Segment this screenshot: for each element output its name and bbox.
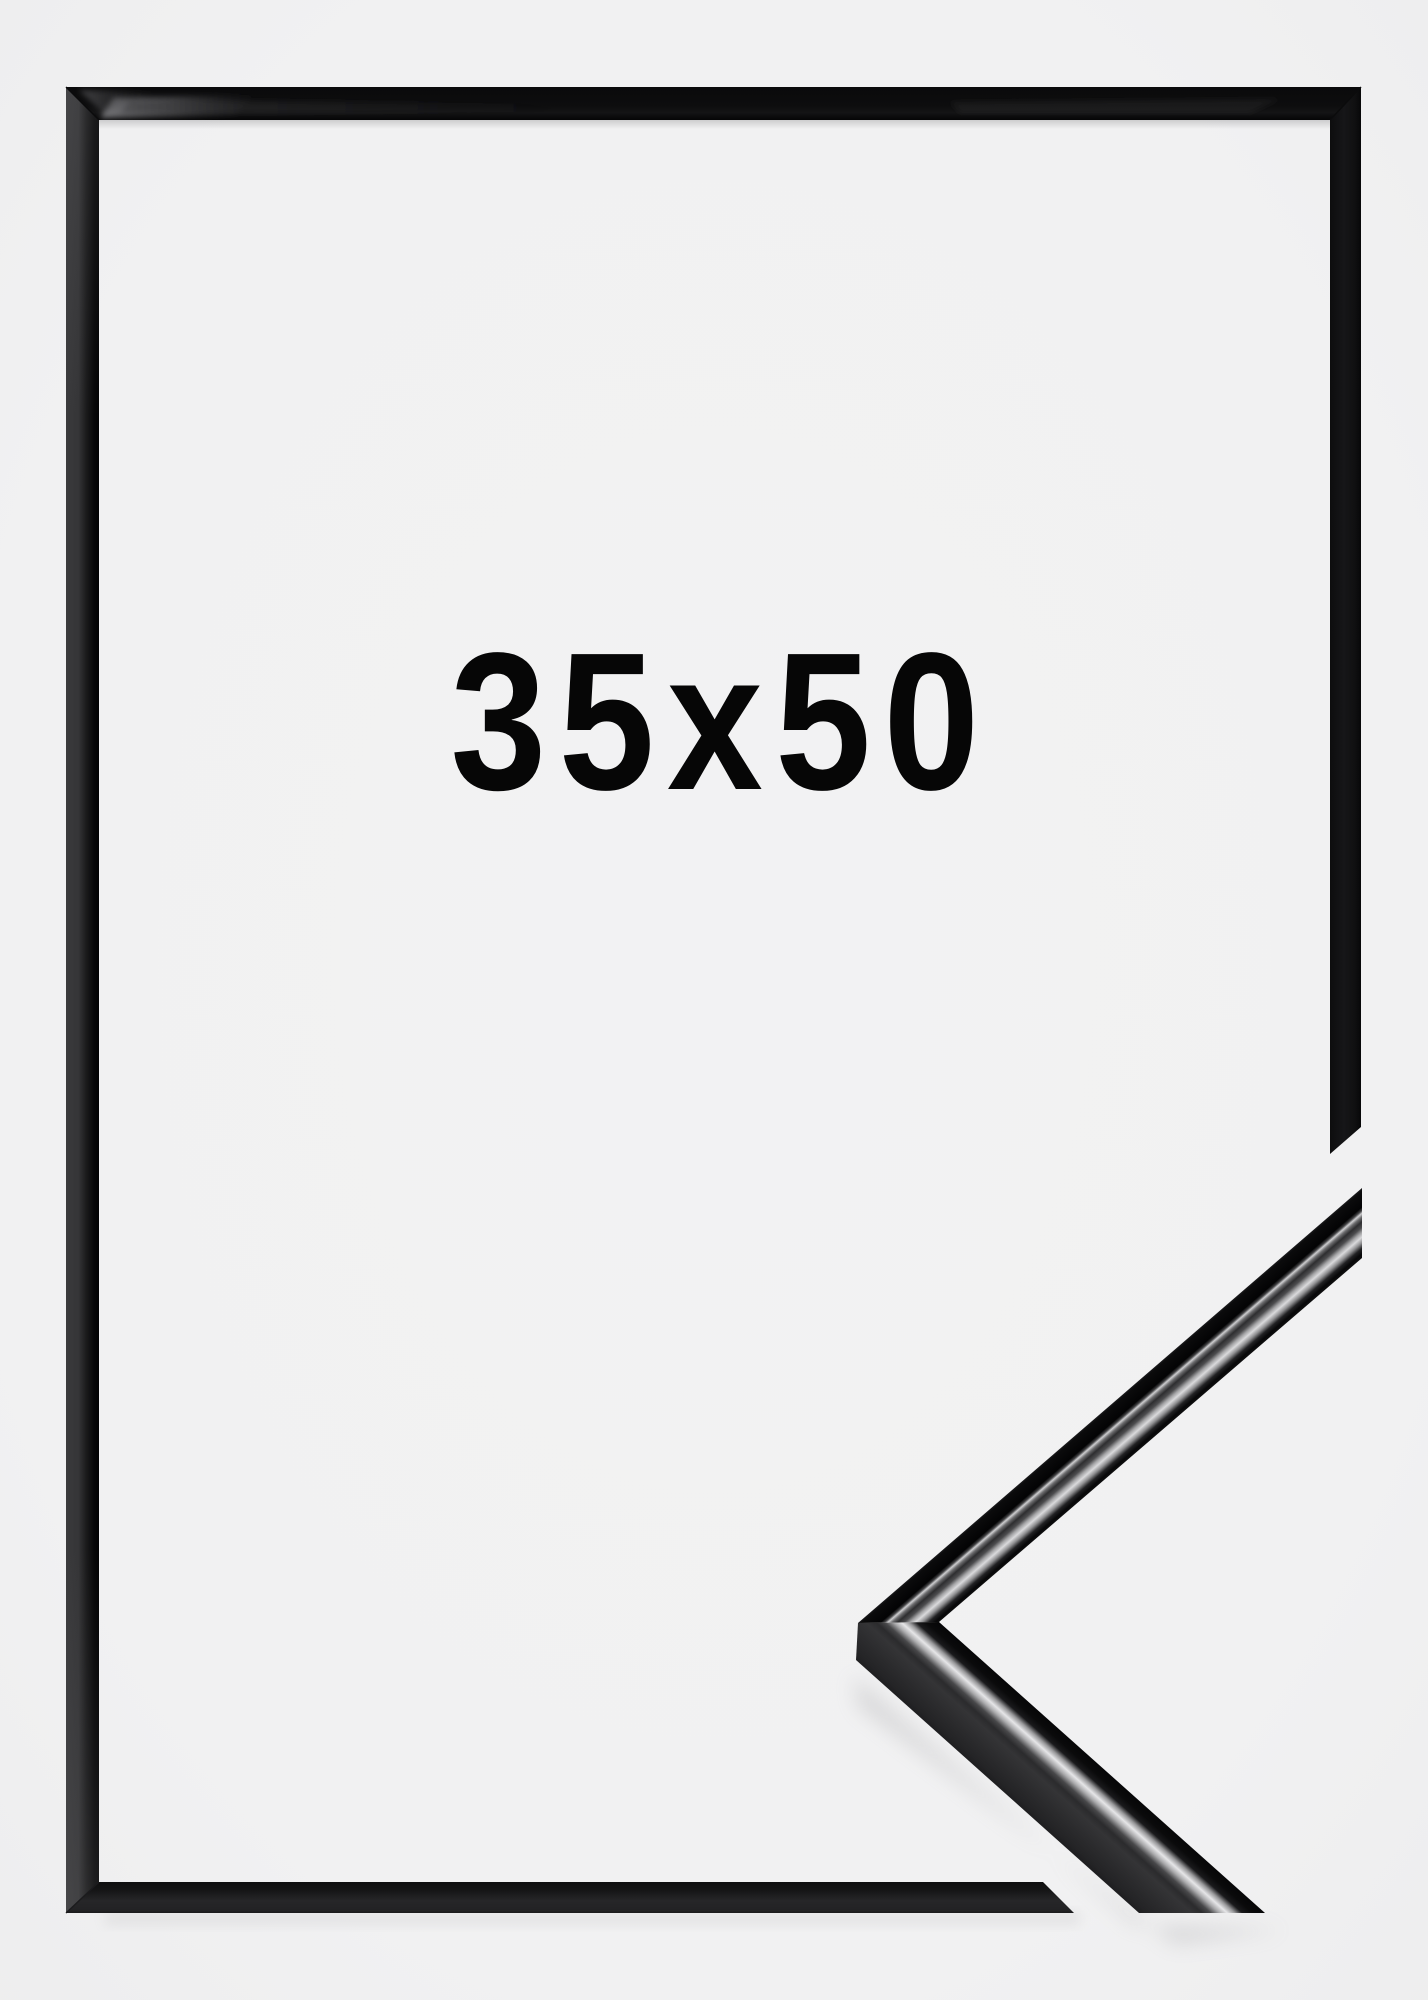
svg-text:35x50: 35x50 <box>450 613 991 832</box>
